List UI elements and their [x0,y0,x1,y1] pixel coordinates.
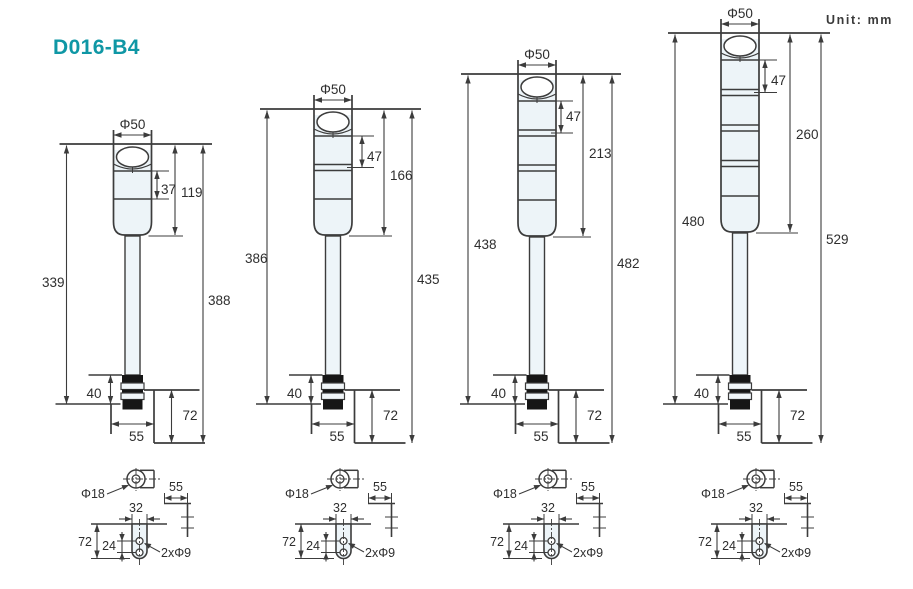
arrowhead [323,534,328,541]
dim-label-bracket-height: 72 [383,408,398,423]
arrowhead [125,516,132,521]
mount-washer [121,383,144,390]
mount-washer [729,393,752,400]
dim-label-hole-span: 24 [306,539,320,553]
arrowhead [114,132,122,137]
tower-cap-lens [117,147,149,167]
arrowhead [147,516,154,521]
arrowhead [776,435,781,443]
dim-label-base-width: 55 [736,429,751,444]
dim-label-tier-height: 47 [771,73,786,88]
arrowhead [714,551,719,559]
arrowhead [715,375,720,383]
arrowhead [537,516,544,521]
arrowhead [409,111,414,119]
arrowhead [200,435,205,443]
tower-head-fill [721,39,759,232]
arrowhead [672,35,677,43]
dim-label-plate-height: 72 [698,535,712,549]
dim-label-head-height: 260 [796,127,819,142]
arrowhead [119,534,124,541]
tower-pole [125,236,140,375]
arrowhead [108,375,113,383]
dim-label-holes: 2xΦ9 [573,546,603,560]
arrowhead [298,551,303,559]
arrowhead [573,390,578,398]
arrowhead [762,85,767,93]
leader-arrow [122,485,130,490]
arrowhead [776,390,781,398]
arrowhead [531,534,536,541]
dim-label-diameter: Φ50 [727,6,753,21]
arrowhead [558,101,563,109]
dim-label-total-height: 482 [617,256,640,271]
dim-label-plate-width: 32 [129,501,143,515]
dim-label-pole-diameter: Φ18 [701,487,725,501]
arrowhead [787,35,792,43]
dim-label-holes: 2xΦ9 [161,546,191,560]
dim-label-head-height: 119 [181,185,203,200]
arrowhead [64,146,69,154]
dim-label-pole-diameter: Φ18 [81,487,105,501]
dim-label-plate-height: 72 [78,535,92,549]
tower-cap-lens [317,112,349,132]
mount-ring [122,375,143,383]
arrowhead [359,136,364,144]
dim-label-hole-span: 24 [102,539,116,553]
arrowhead [739,534,744,541]
tower-cap-lens [724,36,756,56]
dim-label-left-height: 438 [474,237,497,252]
dim-label-leg-width: 55 [581,480,595,494]
arrowhead [200,146,205,154]
tower-drawing-1: 33938811937407255Φ50 [42,117,231,444]
arrowhead [672,396,677,404]
dim-label-holes: 2xΦ9 [781,546,811,560]
arrowhead [169,390,174,398]
dim-label-plate-width: 32 [541,501,555,515]
arrowhead [559,516,566,521]
bracket-detail-1: Φ18553272242xΦ9 [78,468,194,565]
arrowhead [381,227,386,235]
arrowhead [308,396,313,404]
dim-label-bracket-height: 72 [587,408,602,423]
arrowhead [385,495,392,500]
arrowhead [344,97,352,102]
arrowhead [381,111,386,119]
dim-label-left-height: 480 [682,214,705,229]
arrowhead [580,228,585,236]
arrowhead [347,421,355,426]
tower-drawing-4: 48052926047407255Φ50 [663,6,849,444]
dim-label-left-height: 339 [42,275,65,290]
dim-label-base-width: 55 [533,429,548,444]
bracket-detail-3: Φ18553272242xΦ9 [490,468,606,565]
arrowhead [314,97,322,102]
dim-label-total-height: 529 [826,232,849,247]
dim-label-leg-width: 55 [789,480,803,494]
arrowhead [739,553,744,560]
arrowhead [323,553,328,560]
arrowhead [312,421,320,426]
dim-label-bracket-height: 72 [183,408,198,423]
arrowhead [721,21,729,26]
arrowhead [573,435,578,443]
arrowhead [754,421,762,426]
arrowhead [172,227,177,235]
arrowhead [801,495,808,500]
mount-nut [527,400,547,410]
arrowhead [531,553,536,560]
leader-arrow [534,485,542,490]
mount-ring [323,375,344,383]
mount-washer [526,383,549,390]
arrowhead [165,495,172,500]
mount-washer [322,393,345,400]
arrowhead [593,495,600,500]
arrowhead [577,495,584,500]
arrowhead [512,375,517,383]
dim-label-hole-span: 24 [722,539,736,553]
arrowhead [64,396,69,404]
dim-label-stem: 40 [491,386,506,401]
leader-arrow [742,485,750,490]
arrowhead [298,524,303,532]
arrowhead [580,76,585,84]
arrowhead [465,396,470,404]
arrowhead [329,516,336,521]
dim-label-total-height: 435 [417,272,440,287]
arrowhead [506,524,511,532]
dim-label-head-height: 213 [589,146,612,161]
arrowhead [111,421,119,426]
dim-label-tier-height: 47 [566,109,581,124]
dim-label-plate-width: 32 [333,501,347,515]
arrowhead [762,60,767,68]
tower-drawing-2: 38643516647407255Φ50 [245,82,440,444]
arrowhead [146,421,154,426]
arrowhead [785,495,792,500]
dim-label-leg-width: 55 [169,480,183,494]
arrowhead [172,146,177,154]
arrowhead [154,191,159,199]
tower-head-fill [518,80,556,236]
dim-label-diameter: Φ50 [524,47,550,62]
arrowhead [119,553,124,560]
bracket-detail-4: Φ18553272242xΦ9 [698,468,814,565]
arrowhead [369,495,376,500]
bracket-detail-2: Φ18553272242xΦ9 [282,468,398,565]
arrowhead [359,160,364,168]
arrowhead [264,111,269,119]
arrowhead [94,551,99,559]
arrowhead [767,516,774,521]
arrowhead [144,132,152,137]
arrowhead [369,435,374,443]
dim-label-base-width: 55 [329,429,344,444]
arrowhead [609,435,614,443]
arrowhead [818,35,823,43]
dim-label-diameter: Φ50 [320,82,346,97]
dim-label-hole-span: 24 [514,539,528,553]
leader-arrow [326,485,334,490]
tower-drawing-3: 43848221347407255Φ50 [460,47,640,444]
arrowhead [518,62,526,67]
arrowhead [818,435,823,443]
arrowhead [551,421,559,426]
arrowhead [181,495,188,500]
arrowhead [369,390,374,398]
arrowhead [108,396,113,404]
arrowhead [512,396,517,404]
arrowhead [719,421,727,426]
arrowhead [264,396,269,404]
tower-pole [326,236,341,375]
technical-drawing: 33938811937407255Φ5038643516647407255Φ50… [0,0,913,589]
arrowhead [351,516,358,521]
tower-cap-lens [521,77,553,97]
dim-label-stem: 40 [694,386,709,401]
mount-nut [730,400,750,410]
dim-label-base-width: 55 [129,429,144,444]
mount-washer [526,393,549,400]
arrowhead [609,76,614,84]
dim-label-head-height: 166 [390,168,413,183]
dim-label-plate-height: 72 [490,535,504,549]
dim-label-total-height: 388 [208,293,231,308]
mount-nut [123,400,143,410]
mount-washer [322,383,345,390]
arrowhead [745,516,752,521]
dim-label-stem: 40 [287,386,302,401]
dim-label-pole-diameter: Φ18 [285,487,309,501]
dim-label-stem: 40 [86,386,101,401]
dim-label-leg-width: 55 [373,480,387,494]
dim-label-tier-height: 37 [161,182,176,197]
mount-ring [527,375,548,383]
arrowhead [465,76,470,84]
arrowhead [409,435,414,443]
arrowhead [154,171,159,179]
arrowhead [506,551,511,559]
dim-label-plate-height: 72 [282,535,296,549]
arrowhead [308,375,313,383]
dim-label-tier-height: 47 [367,149,382,164]
dim-label-bracket-height: 72 [790,408,805,423]
mount-washer [121,393,144,400]
mount-ring [730,375,751,383]
mount-nut [323,400,343,410]
tower-pole [530,237,545,375]
arrowhead [548,62,556,67]
arrowhead [558,125,563,133]
arrowhead [714,524,719,532]
dim-label-plate-width: 32 [749,501,763,515]
dim-label-diameter: Φ50 [120,117,146,132]
arrowhead [94,524,99,532]
arrowhead [787,224,792,232]
arrowhead [715,396,720,404]
arrowhead [516,421,524,426]
dim-label-holes: 2xΦ9 [365,546,395,560]
tower-pole [733,233,748,375]
dim-label-left-height: 386 [245,251,268,266]
mount-washer [729,383,752,390]
dimensions: 48052926047407255Φ50 [672,6,848,444]
dim-label-pole-diameter: Φ18 [493,487,517,501]
arrowhead [751,21,759,26]
arrowhead [169,435,174,443]
